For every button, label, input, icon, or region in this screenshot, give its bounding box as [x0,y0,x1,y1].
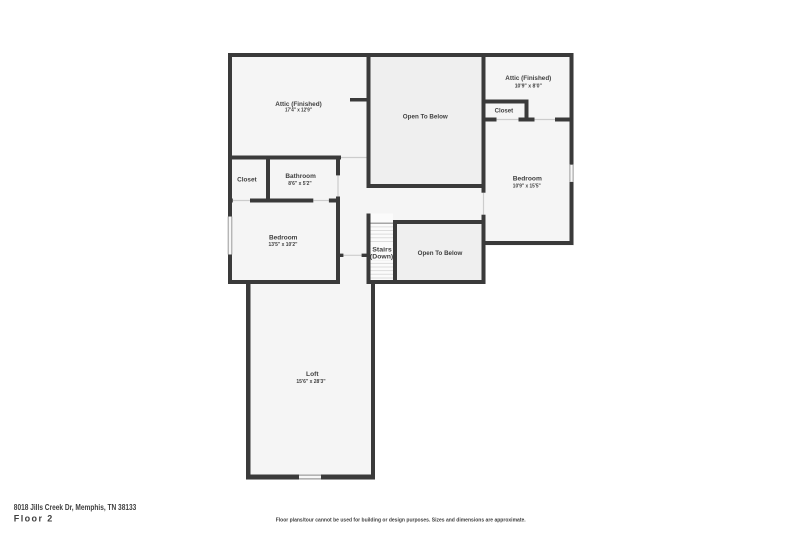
svg-text:Open To Below: Open To Below [418,250,463,257]
svg-text:Open To Below: Open To Below [403,113,449,120]
svg-text:Attic (Finished): Attic (Finished) [505,75,551,82]
svg-text:Loft: Loft [306,371,319,378]
svg-text:(Down): (Down) [370,254,393,261]
svg-text:17'4" x 12'9": 17'4" x 12'9" [285,108,312,114]
svg-text:Bathroom: Bathroom [285,173,316,180]
svg-text:15'6" x 28'3": 15'6" x 28'3" [296,379,326,385]
svg-text:Bedroom: Bedroom [269,235,298,242]
svg-text:13'5" x 10'2": 13'5" x 10'2" [269,242,299,248]
svg-text:10'9" x 15'5": 10'9" x 15'5" [513,183,541,189]
svg-text:8018 Jills Creek Dr, Memphis,: 8018 Jills Creek Dr, Memphis, TN 38133 [14,502,137,512]
svg-text:Floor plans/tour cannot be use: Floor plans/tour cannot be used for buil… [276,518,526,524]
svg-text:Bedroom: Bedroom [513,176,542,183]
svg-text:Closet: Closet [495,107,514,114]
svg-text:Closet: Closet [237,176,257,183]
svg-text:Stairs: Stairs [372,246,392,253]
svg-text:10'9" x 8'0": 10'9" x 8'0" [515,84,543,90]
svg-text:8'6" x 5'2": 8'6" x 5'2" [288,181,312,187]
